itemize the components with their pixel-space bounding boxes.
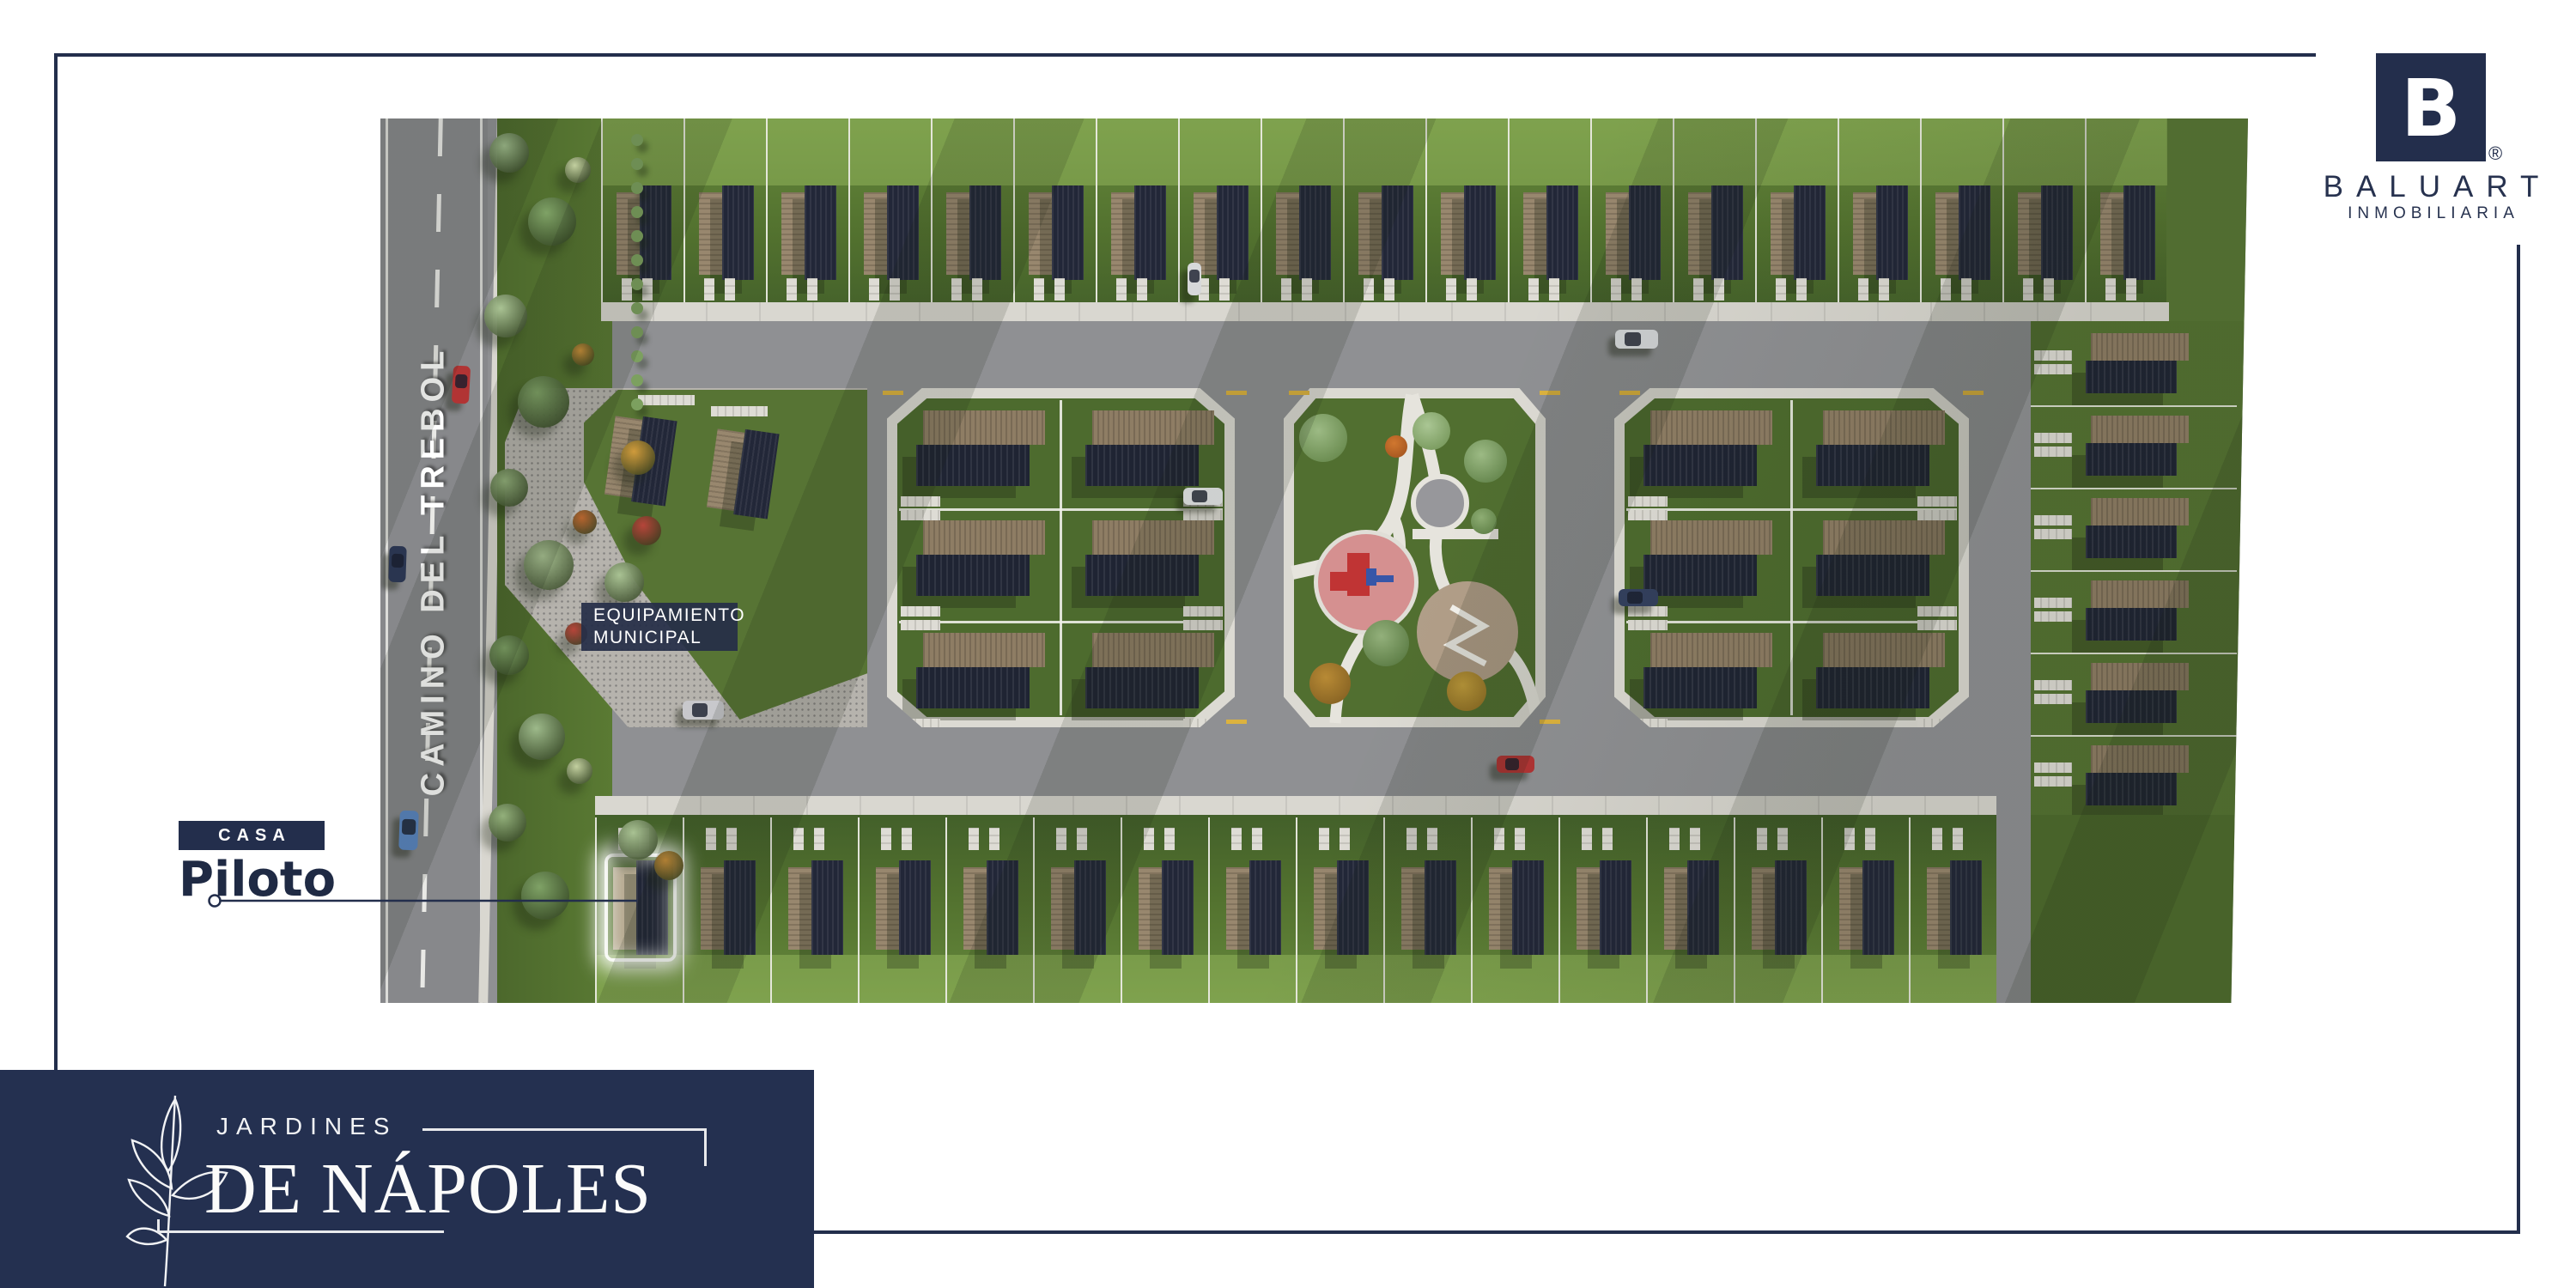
- house-roof-front: [1111, 192, 1134, 275]
- driveway-pad: [1446, 278, 1456, 301]
- house-roof-main: [1959, 185, 1990, 280]
- house-roof-main: [987, 860, 1018, 955]
- driveway-pad: [1302, 278, 1312, 301]
- tree: [524, 540, 574, 590]
- house-lot: [848, 118, 931, 302]
- house-lot: [931, 118, 1013, 302]
- tree: [484, 295, 527, 337]
- driveway-pad: [1669, 828, 1680, 850]
- driveway-pad: [869, 278, 879, 301]
- house-roof-front: [1839, 867, 1862, 950]
- house-roof-front: [946, 192, 969, 275]
- house: [2086, 416, 2189, 479]
- house-lot: [770, 817, 858, 1003]
- driveway-pad: [1056, 828, 1066, 850]
- house-roof-main: [1600, 860, 1631, 955]
- parking-pads: [901, 620, 940, 630]
- house-roof-main: [1950, 860, 1982, 955]
- house: [1853, 185, 1908, 280]
- car-windshield: [692, 703, 708, 716]
- driveway-pad: [969, 828, 979, 850]
- tree: [621, 440, 655, 475]
- house-lot: [1838, 118, 1920, 302]
- house-roof-front: [1401, 867, 1425, 950]
- parking-pads: [2034, 611, 2072, 622]
- house-roof-front: [1650, 633, 1772, 667]
- lot-backyard: [1911, 955, 1996, 1003]
- house-roof-front: [1853, 192, 1876, 275]
- house: [1577, 860, 1631, 955]
- house: [1029, 185, 1084, 280]
- banner-frame-bottom: [157, 1230, 444, 1233]
- lot-backyard: [1015, 118, 1096, 185]
- lot-divider: [1626, 508, 1957, 511]
- registered-trademark-icon: ®: [2488, 143, 2502, 165]
- house-roof-front: [1523, 192, 1546, 275]
- parking-pads: [2034, 447, 2072, 457]
- house: [1816, 633, 1945, 712]
- house-roof-front: [2091, 333, 2189, 361]
- lot-backyard: [603, 118, 683, 185]
- house: [946, 185, 1001, 280]
- parking-pads: [1628, 510, 1668, 520]
- house-roof-main: [1794, 185, 1826, 280]
- lot-backyard: [1180, 118, 1261, 185]
- house: [1643, 520, 1772, 599]
- house-roof-front: [876, 867, 899, 950]
- house-lot: [766, 118, 848, 302]
- driveway-pad: [726, 828, 737, 850]
- lot-backyard: [1735, 955, 1821, 1003]
- house: [916, 410, 1045, 489]
- house-roof-front: [2091, 416, 2189, 443]
- driveway-pad: [1116, 278, 1127, 301]
- house-roof-front: [2091, 498, 2189, 526]
- house-roof-main: [1643, 555, 1757, 596]
- parking-pads: [901, 719, 940, 729]
- house-lot: [1096, 118, 1178, 302]
- driveway-pad: [1611, 278, 1621, 301]
- house-roof-main: [916, 555, 1030, 596]
- house: [1085, 520, 1214, 599]
- driveway-pad: [2044, 278, 2054, 301]
- lot-backyard: [1473, 955, 1558, 1003]
- driveway-pad: [1631, 278, 1642, 301]
- parking-pads: [1183, 719, 1223, 729]
- driveway-pad: [1364, 278, 1374, 301]
- house-roof-main: [1687, 860, 1719, 955]
- frame-top-line: [54, 53, 2316, 57]
- driveway-pad: [1690, 828, 1700, 850]
- house-roof-front: [701, 867, 724, 950]
- driveway-pad: [1777, 828, 1788, 850]
- house: [1226, 860, 1281, 955]
- tree: [572, 343, 594, 366]
- house-roof-front: [1823, 410, 1945, 445]
- south-sidewalk: [595, 796, 1996, 815]
- driveway-pad: [793, 828, 804, 850]
- house-roof-front: [1489, 867, 1512, 950]
- house-roof-front: [2091, 745, 2189, 773]
- house-roof-front: [781, 192, 805, 275]
- driveway-pad: [890, 278, 900, 301]
- driveway-pad: [1714, 278, 1724, 301]
- lot-backyard: [768, 118, 848, 185]
- parking-pads: [1917, 719, 1957, 729]
- house-roof-main: [1085, 555, 1199, 596]
- house-roof-main: [1134, 185, 1166, 280]
- house-roof-main: [1816, 667, 1929, 708]
- driveway-pad: [1231, 828, 1242, 850]
- silver-car: [683, 701, 724, 720]
- brand-name: BALUART: [2310, 170, 2552, 204]
- house: [916, 520, 1045, 599]
- lot-backyard: [1592, 118, 1673, 185]
- frame-right-line: [2517, 245, 2520, 1234]
- house: [1816, 410, 1945, 489]
- parking-pads: [2034, 364, 2072, 374]
- house-roof-main: [1643, 445, 1757, 486]
- house-roof-main: [2086, 526, 2177, 558]
- lot-backyard: [1385, 955, 1471, 1003]
- driveway-pad: [1865, 828, 1875, 850]
- house-roof-main: [2086, 773, 2177, 805]
- lot-backyard: [947, 955, 1033, 1003]
- house-roof-front: [1276, 192, 1299, 275]
- house: [2086, 498, 2189, 562]
- driveway-pad: [787, 278, 797, 301]
- driveway-pad: [902, 828, 912, 850]
- parking-pads: [901, 606, 940, 617]
- house-roof-main: [899, 860, 931, 955]
- lot-backyard: [1097, 118, 1178, 185]
- house-roof-main: [2086, 608, 2177, 641]
- house: [1401, 860, 1456, 955]
- car-windshield: [1625, 332, 1641, 345]
- house-roof-main: [1085, 667, 1199, 708]
- tree: [565, 157, 591, 183]
- driveway-pad: [881, 828, 891, 850]
- tree: [489, 635, 529, 675]
- driveway-pad: [1319, 828, 1329, 850]
- house-lot: [2031, 737, 2237, 819]
- house: [1816, 520, 1945, 599]
- house-lot: [683, 817, 770, 1003]
- lot-divider: [1060, 400, 1062, 715]
- house-roof-main: [2086, 443, 2177, 476]
- white-car-parked: [1183, 488, 1223, 505]
- driveway-pad: [1844, 828, 1855, 850]
- house: [963, 860, 1018, 955]
- house-roof-main: [640, 185, 671, 280]
- house: [1314, 860, 1369, 955]
- house-lot: [2002, 118, 2085, 302]
- driveway-pad: [807, 278, 817, 301]
- parking-pads: [1917, 496, 1957, 507]
- driveway-pad: [1528, 278, 1539, 301]
- house-roof-front: [1092, 633, 1214, 667]
- house-roof-front: [2091, 580, 2189, 608]
- house-lot: [1508, 118, 1590, 302]
- house-roof-front: [2100, 192, 2123, 275]
- lot-backyard: [933, 118, 1013, 185]
- lot-backyard: [1648, 955, 1734, 1003]
- tree: [519, 714, 565, 760]
- parking-pads: [1628, 620, 1668, 630]
- tree: [518, 376, 569, 428]
- lot-backyard: [1823, 955, 1909, 1003]
- central-park: [1284, 388, 1546, 727]
- parking-pads: [2034, 350, 2072, 361]
- house: [1839, 860, 1894, 955]
- driveway-pad: [1776, 278, 1786, 301]
- house-roof-front: [2091, 663, 2189, 690]
- parking-pads: [1628, 719, 1668, 729]
- parking-pads: [2034, 694, 2072, 704]
- house-lot: [1261, 118, 1343, 302]
- house-roof-main: [811, 860, 843, 955]
- house-roof-main: [1085, 445, 1199, 486]
- house: [916, 633, 1045, 712]
- north-sidewalk: [601, 302, 2169, 321]
- house-roof-main: [887, 185, 919, 280]
- house-roof-main: [722, 185, 754, 280]
- house: [1771, 185, 1826, 280]
- driveway-pad: [2023, 278, 2033, 301]
- lot-backyard: [1560, 955, 1646, 1003]
- lot-backyard: [850, 118, 931, 185]
- house: [701, 860, 756, 955]
- house-roof-front: [1927, 867, 1950, 950]
- house-roof-main: [1464, 185, 1496, 280]
- parking-pads: [2034, 433, 2072, 443]
- parking-pads: [2034, 680, 2072, 690]
- pilot-home-leader-line: [208, 893, 637, 908]
- driveway-pad: [814, 828, 824, 850]
- house: [617, 185, 671, 280]
- house-roof-main: [1074, 860, 1106, 955]
- parking-pads: [638, 395, 695, 405]
- lot-backyard: [1674, 118, 1755, 185]
- tree: [605, 562, 644, 602]
- house-lot: [2031, 654, 2237, 737]
- driveway-pad: [1961, 278, 1971, 301]
- car-windshield: [1192, 490, 1206, 502]
- driveway-pad: [1467, 278, 1477, 301]
- house: [1276, 185, 1331, 280]
- lot-backyard: [1839, 118, 1920, 185]
- street-name-label: CAMINO DEL TREBOL: [416, 245, 453, 897]
- house: [2086, 580, 2189, 644]
- house: [1752, 860, 1807, 955]
- house-roof-main: [1249, 860, 1281, 955]
- house-roof-front: [1771, 192, 1794, 275]
- house: [1111, 185, 1166, 280]
- house-lot: [1920, 118, 2002, 302]
- house-roof-main: [1876, 185, 1908, 280]
- lot-backyard: [860, 955, 945, 1003]
- house-roof-front: [1577, 867, 1600, 950]
- house-roof-front: [2018, 192, 2041, 275]
- house-roof-front: [699, 192, 722, 275]
- house-roof-front: [923, 633, 1045, 667]
- house: [1523, 185, 1578, 280]
- house-lot: [683, 118, 766, 302]
- house-roof-front: [864, 192, 887, 275]
- brand-tagline: INMOBILIARIA: [2310, 204, 2552, 223]
- driveway-pad: [1164, 828, 1175, 850]
- house-roof-front: [1650, 520, 1772, 555]
- house-lot: [1646, 817, 1734, 1003]
- house: [699, 185, 754, 280]
- house-roof-front: [1688, 192, 1711, 275]
- brand-logo-letter-icon: B: [2401, 70, 2461, 149]
- pilot-home-badge: CASA: [179, 821, 325, 850]
- lot-backyard: [684, 955, 770, 1003]
- driveway-pad: [1077, 828, 1087, 850]
- house-roof-main: [1546, 185, 1578, 280]
- house-roof-main: [2086, 361, 2177, 393]
- parking-pads: [901, 510, 940, 520]
- hedge-row: [631, 134, 643, 410]
- driveway-pad: [706, 828, 716, 850]
- tree: [528, 197, 576, 246]
- house: [788, 860, 843, 955]
- house: [1643, 633, 1772, 712]
- red-car-south: [1497, 756, 1534, 773]
- north-east-corner-green: [2166, 118, 2248, 325]
- project-name-line2: DE NÁPOLES: [204, 1147, 702, 1230]
- driveway-pad: [1054, 278, 1065, 301]
- municipal-equipment-label: EQUIPAMIENTO MUNICIPAL: [581, 603, 738, 651]
- tree: [573, 510, 597, 534]
- house: [1643, 410, 1772, 489]
- north-house-row: [601, 118, 2167, 302]
- parking-pads: [1183, 606, 1223, 617]
- house: [1688, 185, 1743, 280]
- lot-backyard: [1297, 955, 1383, 1003]
- driveway-pad: [1693, 278, 1704, 301]
- car-windshield: [1627, 592, 1642, 604]
- house-roof-front: [1029, 192, 1052, 275]
- driveway-pad: [1384, 278, 1394, 301]
- house-lot: [1590, 118, 1673, 302]
- house: [2086, 333, 2189, 397]
- lot-backyard: [1510, 118, 1590, 185]
- tree: [632, 516, 661, 545]
- frame-left-line: [54, 53, 58, 1070]
- house-lot: [1033, 817, 1121, 1003]
- house-roof-main: [1643, 667, 1757, 708]
- parking-pads: [1628, 496, 1668, 507]
- parking-pads: [1183, 620, 1223, 630]
- inner-housing-cluster-west: [887, 388, 1235, 727]
- lot-divider: [1626, 621, 1957, 623]
- driveway-pad: [1941, 278, 1951, 301]
- driveway-pad: [951, 278, 962, 301]
- lot-backyard: [1210, 955, 1296, 1003]
- banner-frame-right: [704, 1128, 707, 1166]
- house-roof-main: [2041, 185, 2073, 280]
- driveway-pad: [1549, 278, 1559, 301]
- driveway-pad: [1953, 828, 1963, 850]
- lot-backyard: [685, 118, 766, 185]
- parking-pads: [2034, 529, 2072, 539]
- inner-housing-cluster-east: [1614, 388, 1969, 727]
- house: [1139, 860, 1194, 955]
- house: [864, 185, 919, 280]
- lot-backyard: [772, 955, 858, 1003]
- driveway-pad: [2105, 278, 2116, 301]
- playground-area: [1314, 530, 1419, 635]
- house-lot: [1383, 817, 1471, 1003]
- driveway-pad: [972, 278, 982, 301]
- house-lot: [945, 817, 1033, 1003]
- driveway-pad: [642, 278, 653, 301]
- house: [2018, 185, 2073, 280]
- white-car: [1615, 330, 1658, 349]
- house: [876, 860, 931, 955]
- house-lot: [1734, 817, 1821, 1003]
- house-roof-main: [1425, 860, 1456, 955]
- east-house-column: [2031, 325, 2248, 818]
- house-roof-main: [1775, 860, 1807, 955]
- parking-pads: [2034, 598, 2072, 608]
- house-roof-front: [1650, 410, 1772, 445]
- house-roof-main: [1512, 860, 1544, 955]
- house-roof-front: [1092, 520, 1214, 555]
- lot-backyard: [1922, 118, 2002, 185]
- lot-backyard: [1345, 118, 1425, 185]
- flyer-page: B ® BALUART INMOBILIARIA: [0, 0, 2576, 1288]
- lot-divider: [1790, 400, 1793, 715]
- navy-car: [388, 546, 406, 583]
- house-lot: [2031, 489, 2237, 572]
- parking-pads: [2034, 776, 2072, 787]
- house-roof-front: [1358, 192, 1382, 275]
- driveway-pad: [1494, 828, 1504, 850]
- house: [1935, 185, 1990, 280]
- driveway-pad: [1281, 278, 1291, 301]
- house-lot: [1909, 817, 1996, 1003]
- house-roof-main: [1052, 185, 1084, 280]
- house-lot: [1755, 118, 1838, 302]
- tree: [490, 469, 528, 507]
- parking-pads: [1917, 606, 1957, 617]
- lot-backyard: [1262, 118, 1343, 185]
- house-roof-front: [1314, 867, 1337, 950]
- tree: [489, 133, 529, 173]
- house-lot: [1558, 817, 1646, 1003]
- tree: [489, 804, 526, 841]
- house-roof-main: [969, 185, 1001, 280]
- tree: [654, 851, 683, 880]
- driveway-pad: [1144, 828, 1154, 850]
- house-roof-main: [2086, 690, 2177, 723]
- house-roof-front: [1441, 192, 1464, 275]
- house: [1085, 633, 1214, 712]
- house-roof-main: [1162, 860, 1194, 955]
- lot-backyard: [2087, 118, 2167, 185]
- house-lot: [2031, 407, 2237, 489]
- lot-divider: [899, 621, 1223, 623]
- house-lot: [2031, 325, 2237, 407]
- house-roof-front: [1935, 192, 1959, 275]
- driveway-pad: [1034, 278, 1044, 301]
- house-roof-main: [724, 860, 756, 955]
- parking-pads: [1628, 732, 1668, 743]
- lot-backyard: [1427, 118, 1508, 185]
